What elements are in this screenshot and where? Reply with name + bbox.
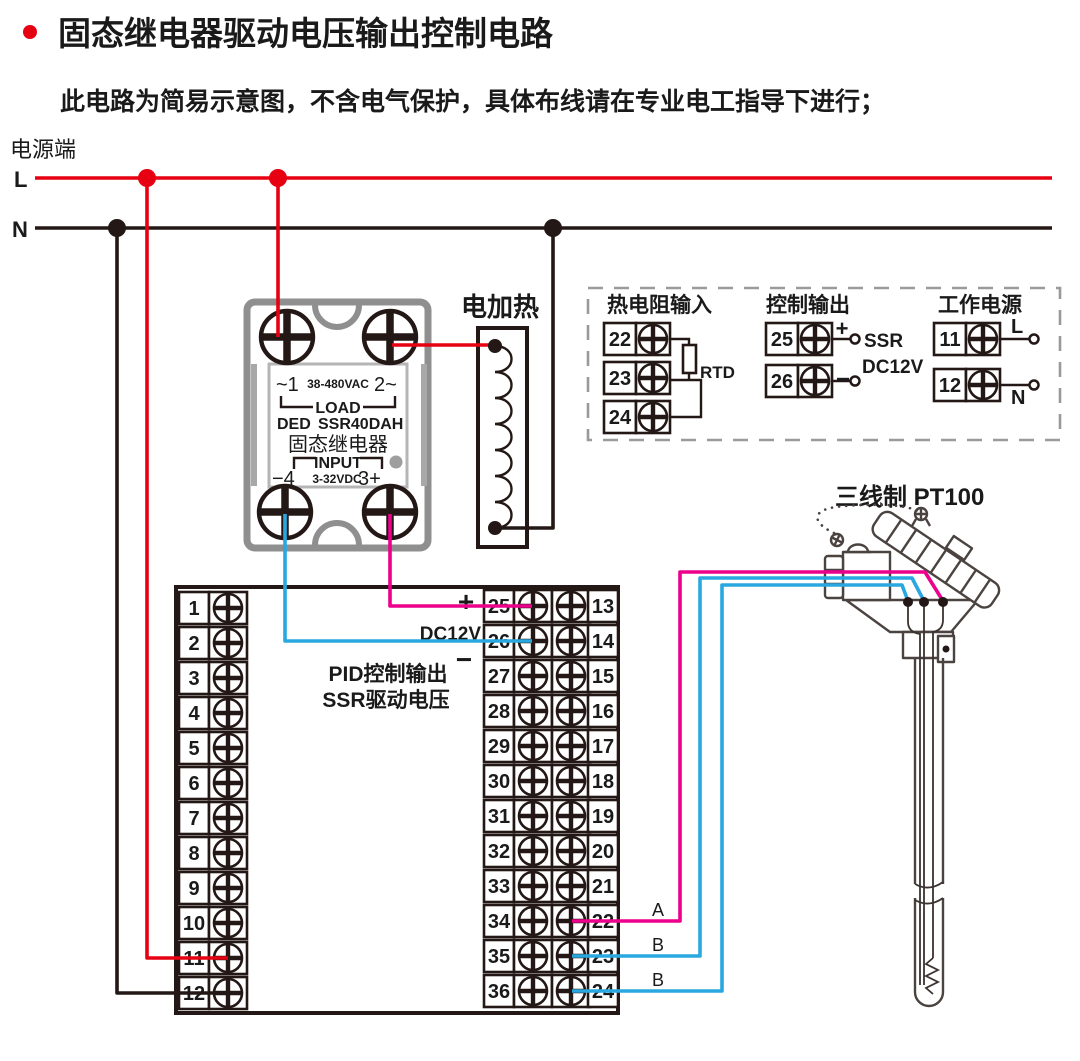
heater-body — [478, 328, 527, 547]
sensor-head — [843, 552, 890, 600]
svg-text:19: 19 — [592, 806, 614, 828]
screw-terminal-icon — [519, 907, 547, 935]
work-power-wires — [1000, 339, 1029, 385]
heater-label: 电加热 — [461, 292, 539, 322]
screw-terminal-icon — [519, 697, 547, 725]
ssr-terminal3-label: 3+ — [358, 468, 381, 490]
probe-element-icon — [926, 958, 938, 994]
line-l-label: L — [14, 167, 27, 192]
ssr-vac-label: 38-480VAC — [307, 377, 369, 391]
line-n-label: N — [12, 217, 28, 242]
screw-terminal-icon — [519, 767, 547, 795]
svg-text:35: 35 — [488, 946, 510, 968]
wire-b-label: B — [652, 935, 664, 955]
screw-terminal-icon — [801, 367, 829, 395]
screw-terminal-icon — [214, 874, 242, 902]
pt100-label: 三线制 PT100 — [835, 484, 984, 511]
svg-text:17: 17 — [592, 736, 614, 758]
junction-dot — [544, 219, 562, 237]
sensor-terminal-dot — [919, 597, 929, 607]
svg-text:1: 1 — [188, 598, 199, 620]
panel-l-label: L — [1011, 316, 1023, 338]
sensor-hinge-screw — [831, 534, 843, 546]
panel-n-label: N — [1011, 387, 1025, 409]
screw-terminal-icon — [519, 662, 547, 690]
svg-text:34: 34 — [488, 911, 511, 933]
heater-bottom-node — [488, 521, 502, 535]
svg-text:27: 27 — [488, 666, 510, 688]
terminal-row: 7 — [179, 802, 247, 834]
ssr-terminal1-label: ~1 — [276, 374, 299, 396]
svg-text:18: 18 — [592, 771, 614, 793]
svg-text:8: 8 — [188, 843, 199, 865]
page-title: 固态继电器驱动电压输出控制电路 — [58, 15, 554, 52]
screw-terminal-icon — [214, 664, 242, 692]
svg-text:10: 10 — [183, 913, 205, 935]
svg-text:26: 26 — [771, 371, 793, 393]
controller-plus-label: + — [458, 586, 474, 617]
junction-dot — [108, 219, 126, 237]
ssr-brand-label: DED — [277, 416, 311, 433]
controller-minus-label: − — [456, 644, 472, 675]
terminal-row: 1 — [179, 592, 247, 624]
ssr-name-label: 固态继电器 — [288, 433, 388, 456]
page-subtitle: 此电路为简易示意图，不含电气保护，具体布线请在专业电工指导下进行； — [60, 87, 885, 116]
screw-terminal-icon — [519, 977, 547, 1005]
pid-output-label: PID控制输出 — [328, 662, 447, 686]
terminal-row: 10 — [179, 907, 247, 939]
screw-terminal-icon — [557, 662, 585, 690]
svg-text:25: 25 — [771, 329, 793, 351]
ssr-load-label: LOAD — [315, 400, 360, 417]
screw-terminal-icon — [214, 734, 242, 762]
screw-terminal-icon — [214, 804, 242, 832]
terminal-panel: 热电阻输入 RTD 22 23 24 控制输出 + − SSR DC12V 25… — [588, 288, 1060, 440]
svg-text:16: 16 — [592, 701, 614, 723]
screw-terminal-icon — [519, 802, 547, 830]
terminal-row: 3018 — [484, 765, 618, 797]
svg-text:11: 11 — [939, 329, 960, 351]
screw-terminal-icon — [639, 403, 667, 431]
svg-text:22: 22 — [609, 329, 631, 351]
screw-terminal-icon — [214, 699, 242, 727]
wiring-diagram-page: 固态继电器驱动电压输出控制电路 此电路为简易示意图，不含电气保护，具体布线请在专… — [0, 0, 1080, 1061]
screw-terminal-icon — [214, 839, 242, 867]
screw-terminal-icon — [969, 371, 997, 399]
header: 固态继电器驱动电压输出控制电路 此电路为简易示意图，不含电气保护，具体布线请在专… — [23, 15, 885, 116]
ssr-model-label: SSR40DAH — [318, 416, 403, 433]
screw-terminal-icon — [557, 872, 585, 900]
svg-text:6: 6 — [188, 773, 199, 795]
screw-terminal-icon — [557, 697, 585, 725]
svg-text:32: 32 — [488, 841, 510, 863]
ssr-minus-node — [851, 377, 860, 386]
heater: 电加热 — [461, 292, 539, 547]
svg-text:12: 12 — [939, 375, 961, 397]
power-terminal-label: 电源端 — [10, 137, 76, 162]
heater-top-node — [488, 339, 502, 353]
ssr-input-label: INPUT — [314, 455, 362, 472]
svg-text:15: 15 — [592, 666, 614, 688]
terminal-row: 6 — [179, 767, 247, 799]
panel-dc12v-label: DC12V — [862, 357, 924, 378]
screw-terminal-icon — [557, 592, 585, 620]
ssr-module: ~1 38-480VAC 2~ LOAD DED SSR40DAH 固态继电器 … — [247, 302, 428, 548]
screw-terminal-icon — [519, 837, 547, 865]
svg-text:28: 28 — [488, 701, 510, 723]
screw-terminal-icon — [557, 627, 585, 655]
ssr-terminal2-label: 2~ — [374, 374, 397, 396]
terminal-row: 3321 — [484, 870, 618, 902]
ssr-drive-label: SSR驱动电压 — [322, 689, 449, 712]
wire-b-label: B — [652, 970, 664, 990]
svg-text:20: 20 — [592, 841, 614, 863]
ssr-terminal4-label: −4 — [272, 468, 295, 490]
svg-text:30: 30 — [488, 771, 510, 793]
svg-text:9: 9 — [188, 878, 199, 900]
ssr-screw-icon — [363, 310, 417, 364]
screw-terminal-icon — [214, 769, 242, 797]
svg-text:2: 2 — [188, 633, 199, 655]
svg-text:21: 21 — [592, 876, 614, 898]
ssr-side-bar — [421, 364, 427, 486]
wire-a-label: A — [652, 900, 664, 920]
svg-text:7: 7 — [188, 808, 199, 830]
panel-plus-label: + — [836, 316, 849, 341]
screw-terminal-icon — [639, 325, 667, 353]
screw-terminal-icon — [801, 325, 829, 353]
screw-terminal-icon — [557, 732, 585, 760]
wire-rtd-b1 — [572, 578, 924, 956]
ssr-side-bar — [251, 364, 257, 486]
ssr-screw-icon — [260, 310, 314, 364]
svg-text:23: 23 — [609, 368, 631, 390]
sensor-cap-screw — [912, 508, 930, 526]
rtd-resistor-icon — [683, 345, 696, 373]
screw-terminal-icon — [519, 942, 547, 970]
screw-terminal-icon — [557, 802, 585, 830]
rtd-input-group: 热电阻输入 RTD 22 23 24 — [604, 293, 735, 433]
screw-terminal-icon — [557, 767, 585, 795]
neutral-node — [1030, 381, 1039, 390]
svg-text:5: 5 — [188, 738, 199, 760]
control-output-title: 控制输出 — [766, 293, 850, 317]
svg-text:4: 4 — [188, 703, 200, 725]
rtd-input-title: 热电阻输入 — [607, 293, 712, 317]
sensor-terminal-dot — [938, 597, 948, 607]
terminal-row: 2715 — [484, 660, 618, 692]
sensor-terminal-dot — [903, 597, 913, 607]
ssr-led-icon — [390, 456, 403, 469]
terminal-row: 3220 — [484, 835, 618, 867]
terminal-row: 4 — [179, 697, 247, 729]
ssr-vdc-label: 3-32VDC — [312, 472, 362, 486]
screw-terminal-icon — [639, 364, 667, 392]
terminal-row: 2 — [179, 627, 247, 659]
junction-dot — [269, 169, 287, 187]
live-node — [1030, 335, 1039, 344]
work-power-title: 工作电源 — [938, 293, 1022, 317]
screw-terminal-icon — [214, 909, 242, 937]
ssr-plus-node — [851, 335, 860, 344]
screw-terminal-icon — [557, 837, 585, 865]
svg-text:33: 33 — [488, 876, 510, 898]
work-power-group: 工作电源 L N 11 12 — [934, 293, 1039, 409]
terminal-row: 5 — [179, 732, 247, 764]
terminal-row: 2917 — [484, 730, 618, 762]
panel-minus-label: − — [836, 366, 850, 393]
bullet-icon — [23, 25, 37, 39]
terminal-row: 8 — [179, 837, 247, 869]
screw-terminal-icon — [214, 629, 242, 657]
svg-text:3: 3 — [188, 668, 199, 690]
sensor-plate-dot — [943, 646, 950, 653]
junction-dot — [138, 169, 156, 187]
screw-terminal-icon — [214, 594, 242, 622]
rtd-label: RTD — [700, 363, 735, 382]
probe-tip — [915, 992, 943, 1006]
control-output-group: 控制输出 + − SSR DC12V 25 26 — [766, 293, 924, 397]
panel-ssr-label: SSR — [864, 331, 903, 352]
wiring-diagram: 固态继电器驱动电压输出控制电路 此电路为简易示意图，不含电气保护，具体布线请在专… — [0, 0, 1080, 1061]
screw-terminal-icon — [519, 732, 547, 760]
svg-text:24: 24 — [609, 407, 632, 429]
terminal-row: 2816 — [484, 695, 618, 727]
svg-text:13: 13 — [592, 596, 614, 618]
terminal-row: 3 — [179, 662, 247, 694]
pt100-sensor: 三线制 PT100 — [817, 484, 1002, 1006]
svg-text:14: 14 — [592, 631, 615, 653]
sensor-dome-screw — [845, 545, 871, 552]
svg-text:36: 36 — [488, 981, 510, 1003]
screw-terminal-icon — [519, 872, 547, 900]
svg-text:29: 29 — [488, 736, 510, 758]
svg-text:31: 31 — [488, 806, 510, 828]
controller: 1 2 3 4 5 6 7 8 9 10 11 12 2513 2614 271… — [176, 586, 618, 1013]
terminal-row: 3119 — [484, 800, 618, 832]
screw-terminal-icon — [969, 325, 997, 353]
terminal-row: 9 — [179, 872, 247, 904]
wire-rtd-b2 — [572, 585, 908, 991]
